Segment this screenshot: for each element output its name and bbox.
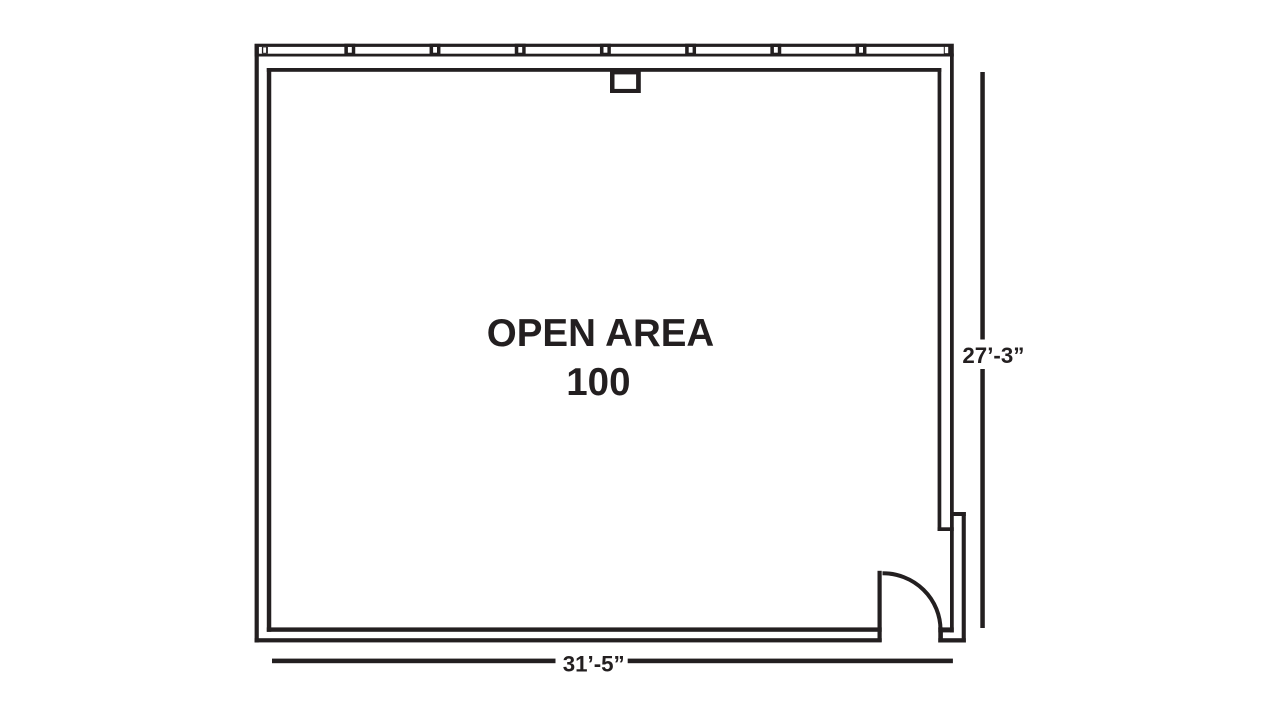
svg-text:27’-3”: 27’-3” [962, 343, 1024, 368]
svg-text:31’-5”: 31’-5” [563, 651, 625, 676]
svg-text:100: 100 [566, 361, 630, 404]
svg-text:OPEN AREA: OPEN AREA [487, 312, 714, 355]
